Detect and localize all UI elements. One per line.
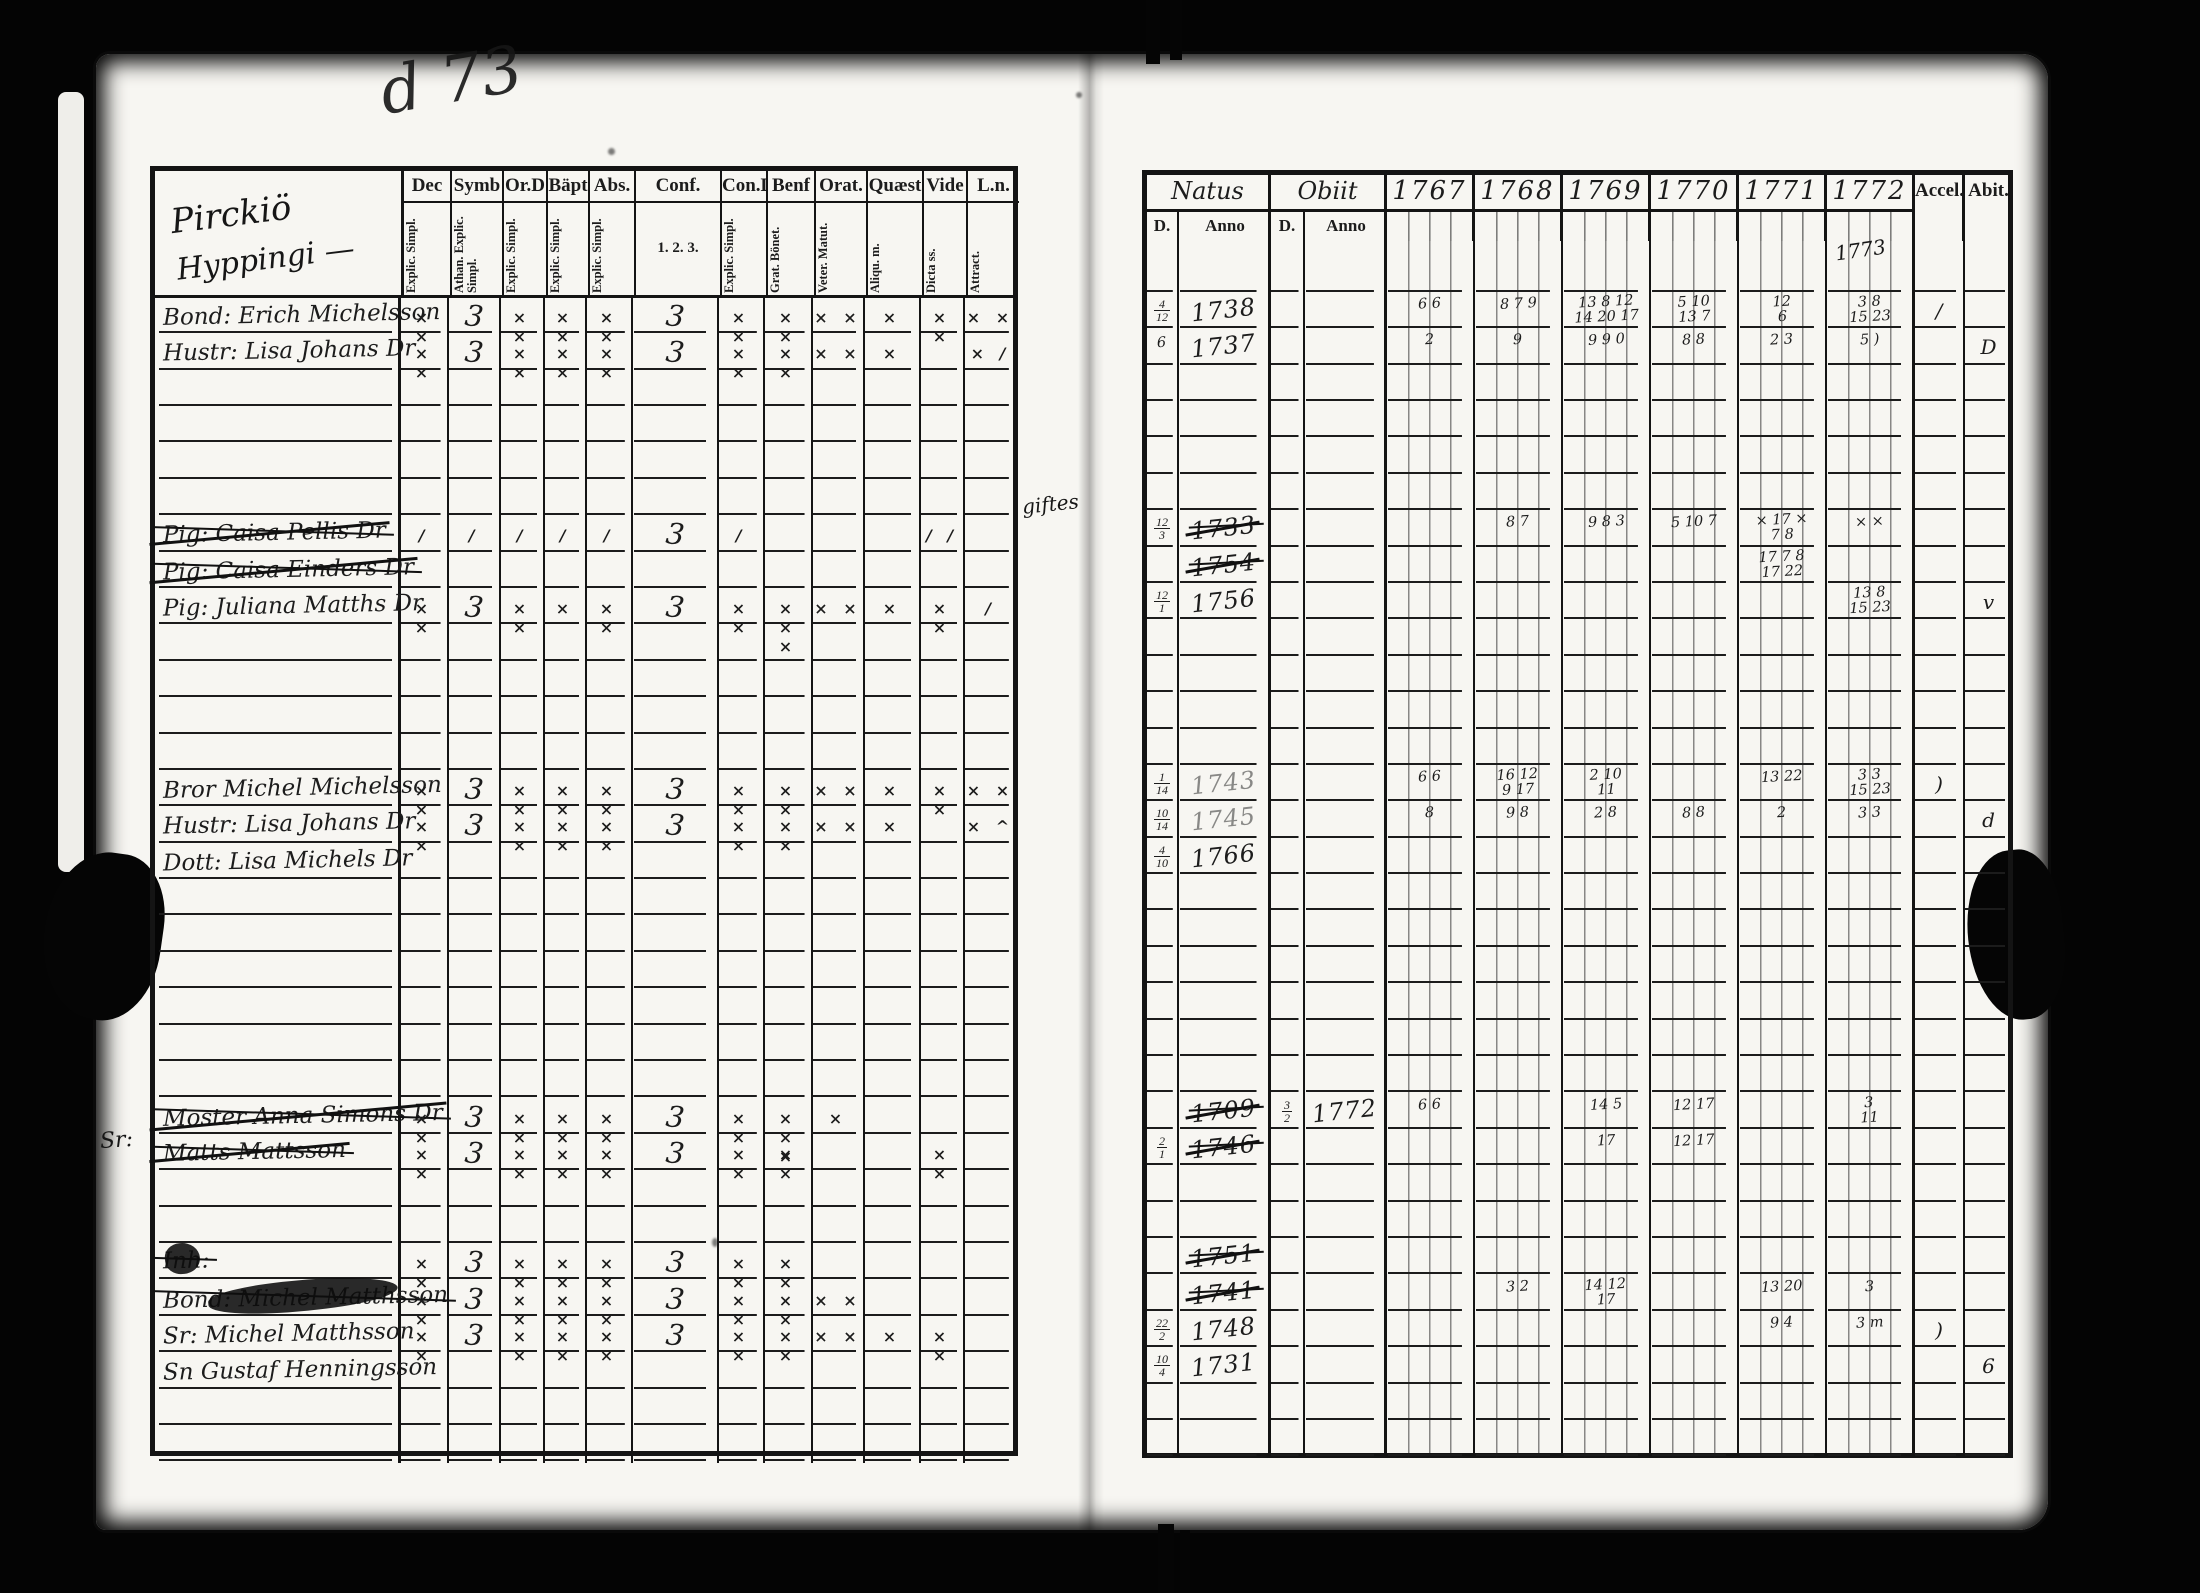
- right-table-row: 1751: [1147, 1239, 2008, 1275]
- obiit-cell: [1305, 1421, 1387, 1457]
- year-value: 6: [1157, 336, 1167, 352]
- natus-cell: [1179, 241, 1271, 293]
- natus-cell: 1737: [1179, 329, 1271, 365]
- communion-year-cell: [1651, 1312, 1739, 1348]
- communion-year-cell: [1827, 548, 1915, 584]
- examination-mark: /: [736, 526, 747, 545]
- mark-cell: × ×: [501, 1135, 545, 1171]
- communion-year-cell: [1827, 1348, 1915, 1384]
- person-name-cell: Pig: Caisa Einders Dr: [155, 553, 401, 589]
- examination-mark: 3: [463, 298, 485, 334]
- mark-cell: [401, 698, 449, 734]
- communion-year-cell: [1651, 1166, 1739, 1202]
- day-fraction: 412: [1154, 298, 1170, 323]
- mark-cell: [587, 1426, 633, 1462]
- accel-cell: [1915, 548, 1965, 584]
- communion-year-cell: [1563, 839, 1651, 875]
- communion-year-cell: [1475, 948, 1563, 984]
- mark-cell: [921, 1026, 965, 1062]
- accel-cell: [1915, 802, 1965, 838]
- day-fraction: 410: [1154, 844, 1170, 869]
- year-header-1767: 1767: [1387, 175, 1475, 241]
- communion-year-cell: 8: [1387, 802, 1475, 838]
- communion-year-cell: [1739, 948, 1827, 984]
- right-table-row: [1147, 984, 2008, 1020]
- communion-year-cell: [1387, 1166, 1475, 1202]
- examination-mark: 3: [664, 1244, 686, 1280]
- communion-date-marks: 8 7 9: [1499, 296, 1537, 313]
- natus-cell: 410: [1147, 839, 1179, 875]
- mark-cell: [501, 444, 545, 480]
- obiit-cell: [1305, 1057, 1387, 1093]
- mark-cell: [865, 1026, 921, 1062]
- person-name-cell: [155, 1426, 401, 1462]
- natus-cell: 1731: [1179, 1348, 1271, 1384]
- communion-year-cell: [1387, 730, 1475, 766]
- communion-year-cell: [1739, 839, 1827, 875]
- person-name-cell: [155, 917, 401, 953]
- mark-cell: ×: [865, 298, 921, 334]
- person-name-cell: [155, 698, 401, 734]
- mark-cell: [965, 1426, 1016, 1462]
- year-label: 1768: [1475, 175, 1560, 212]
- communion-year-cell: × 17 × 7 8: [1739, 511, 1827, 547]
- abit-cell: [1965, 402, 2012, 438]
- left-table-row: Dott: Lisa Michels Dr: [155, 844, 1013, 880]
- column-label: Or.D: [504, 171, 546, 203]
- left-table-row: Hustr: Lisa Johans Dr× ×3× ×× ×× ×3× ×× …: [155, 807, 1013, 843]
- examination-mark: 3: [664, 589, 686, 625]
- left-table-row: [155, 1062, 1013, 1098]
- communion-year-cell: 9 4: [1739, 1312, 1827, 1348]
- mark-cell: [921, 371, 965, 407]
- mark-cell: [965, 444, 1016, 480]
- examination-mark: 3: [463, 589, 485, 625]
- obiit-cell: [1305, 621, 1387, 657]
- communion-year-cell: 13 8 15 23: [1827, 584, 1915, 620]
- abit-cell: [1965, 912, 2012, 948]
- mark-cell: [401, 1026, 449, 1062]
- mark-cell: [921, 1281, 965, 1317]
- mark-cell: [965, 1171, 1016, 1207]
- abit-cell: [1965, 1166, 2012, 1202]
- obiit-cell: [1305, 548, 1387, 584]
- person-name-cell: [155, 407, 401, 443]
- natus-cell: [1147, 912, 1179, 948]
- examination-mark: 3: [664, 1281, 686, 1317]
- natus-cell: [1147, 621, 1179, 657]
- communion-year-cell: [1651, 693, 1739, 729]
- left-table-row: Pig: Juliana Matths Dr× ×3× ××× ×3× ×× ×…: [155, 589, 1013, 625]
- mark-cell: 3: [633, 1135, 719, 1171]
- mark-cell: [401, 553, 449, 589]
- mark-cell: × ×: [719, 1281, 765, 1317]
- communion-year-cell: [1651, 439, 1739, 475]
- natus-cell: 21: [1147, 1130, 1179, 1166]
- mark-cell: × ×: [587, 298, 633, 334]
- natus-cell: 1738: [1179, 293, 1271, 329]
- mark-cell: [813, 989, 865, 1025]
- mark-cell: [921, 880, 965, 916]
- obiit-cell: [1271, 402, 1305, 438]
- examination-mark: × ×: [814, 599, 861, 618]
- mark-cell: [865, 516, 921, 552]
- mark-cell: × ×: [401, 1244, 449, 1280]
- mark-cell: × ×: [719, 334, 765, 370]
- mark-cell: 3: [449, 589, 501, 625]
- natus-cell: [1147, 548, 1179, 584]
- left-table-row: Pig: Caisa Pellis Dr/////3// /: [155, 516, 1013, 552]
- mark-cell: [813, 1171, 865, 1207]
- communion-year-cell: [1563, 730, 1651, 766]
- mark-cell: [545, 880, 587, 916]
- mark-cell: [719, 480, 765, 516]
- communion-year-cell: [1563, 1057, 1651, 1093]
- mark-cell: [401, 880, 449, 916]
- natus-cell: [1147, 1166, 1179, 1202]
- communion-year-cell: [1387, 1130, 1475, 1166]
- communion-date-marks: 3: [1864, 1279, 1874, 1295]
- accel-cell: /: [1915, 293, 1965, 329]
- obiit-cell: [1305, 1385, 1387, 1421]
- column-sublabel: Explic. Simpl.: [548, 203, 588, 295]
- accel-cell: [1915, 1057, 1965, 1093]
- abit-mark: D: [1980, 335, 1996, 359]
- person-name-cell: Sr: Michel Matthsson: [155, 1317, 401, 1353]
- obiit-cell: [1305, 439, 1387, 475]
- communion-year-cell: 12 6: [1739, 293, 1827, 329]
- communion-year-cell: 3: [1827, 1276, 1915, 1312]
- communion-year-cell: 5 10 13 7: [1651, 293, 1739, 329]
- communion-date-marks: 12 17: [1673, 1133, 1715, 1150]
- year-value: 1738: [1190, 293, 1258, 328]
- day-fraction: 121: [1154, 589, 1170, 614]
- accel-cell: [1915, 1166, 1965, 1202]
- right-table-row: 4101766: [1147, 839, 2008, 875]
- year-value: 1737: [1190, 329, 1258, 364]
- right-table-row: [1147, 1166, 2008, 1202]
- mark-cell: 3: [449, 1244, 501, 1280]
- column-head-abs: Abs. Explic. Simpl.: [590, 171, 636, 295]
- mark-cell: × ×: [719, 771, 765, 807]
- mark-cell: [633, 989, 719, 1025]
- mark-cell: 3: [449, 1281, 501, 1317]
- obiit-cell: [1305, 802, 1387, 838]
- abit-cell: [1965, 657, 2012, 693]
- mark-cell: [921, 334, 965, 370]
- year-value: 1751: [1190, 1239, 1258, 1274]
- communion-year-cell: 6 6: [1387, 766, 1475, 802]
- communion-year-cell: [1739, 875, 1827, 911]
- day-fraction: 114: [1154, 771, 1170, 796]
- right-table-row: 175417 7 8 17 22: [1147, 548, 2008, 584]
- obiit-label: Obiit: [1271, 175, 1384, 212]
- obiit-cell: [1271, 241, 1305, 293]
- left-table-row: [155, 917, 1013, 953]
- natus-cell: [1179, 366, 1271, 402]
- mark-cell: [921, 1390, 965, 1426]
- mark-cell: × ×: [813, 807, 865, 843]
- mark-cell: [545, 407, 587, 443]
- mark-cell: × ×: [545, 298, 587, 334]
- margin-prefix-sr: Sr:: [99, 1127, 134, 1154]
- person-name-cell: Bond: Erich Michelsson: [155, 298, 401, 334]
- accel-cell: [1915, 1348, 1965, 1384]
- examination-mark: 3: [463, 1135, 485, 1171]
- communion-year-cell: [1475, 1312, 1563, 1348]
- natus-cell: [1179, 912, 1271, 948]
- communion-year-cell: [1739, 475, 1827, 511]
- communion-year-cell: 13 22: [1739, 766, 1827, 802]
- day-fraction: 123: [1154, 516, 1170, 541]
- mark-cell: [449, 444, 501, 480]
- mark-cell: [765, 626, 813, 662]
- mark-cell: [865, 917, 921, 953]
- communion-year-cell: [1739, 1021, 1827, 1057]
- mark-cell: [449, 1426, 501, 1462]
- ink-speck: [608, 148, 615, 155]
- accel-mark: /: [1936, 299, 1943, 323]
- mark-cell: × ×: [587, 1281, 633, 1317]
- mark-cell: [921, 553, 965, 589]
- mark-cell: [545, 626, 587, 662]
- mark-cell: [401, 844, 449, 880]
- mark-cell: [633, 844, 719, 880]
- mark-cell: × ×: [921, 298, 965, 334]
- communion-date-marks: 3 8 15 23: [1848, 294, 1891, 327]
- column-sublabel: Explic. Simpl.: [404, 203, 450, 295]
- mark-cell: [719, 735, 765, 771]
- communion-year-cell: 9 8: [1475, 802, 1563, 838]
- examination-mark: × ×: [814, 1291, 861, 1310]
- mark-cell: [765, 917, 813, 953]
- obiit-cell: [1271, 366, 1305, 402]
- left-table-row: [155, 953, 1013, 989]
- communion-year-cell: [1739, 730, 1827, 766]
- obiit-cell: [1305, 766, 1387, 802]
- abit-mark: 6: [1982, 1354, 1995, 1378]
- communion-year-cell: 9 9 0: [1563, 329, 1651, 365]
- mark-cell: [921, 698, 965, 734]
- communion-year-cell: [1739, 366, 1827, 402]
- communion-year-cell: [1739, 1239, 1827, 1275]
- communion-year-cell: [1651, 657, 1739, 693]
- communion-year-cell: [1651, 948, 1739, 984]
- communion-year-cell: [1475, 1130, 1563, 1166]
- communion-year-cell: [1739, 693, 1827, 729]
- communion-year-cell: [1563, 1239, 1651, 1275]
- person-name-cell: [155, 662, 401, 698]
- mark-cell: [865, 1135, 921, 1171]
- right-table-row: [1147, 475, 2008, 511]
- mark-cell: [633, 735, 719, 771]
- obiit-cell: [1271, 1166, 1305, 1202]
- examination-mark: × /: [971, 344, 1011, 363]
- mark-cell: [587, 662, 633, 698]
- communion-year-cell: [1827, 1239, 1915, 1275]
- mark-cell: [587, 880, 633, 916]
- column-head-dec: Dec Explic. Simpl.: [404, 171, 452, 295]
- mark-cell: × × ×: [765, 1099, 813, 1135]
- communion-year-cell: [1739, 1130, 1827, 1166]
- communion-year-cell: [1475, 1385, 1563, 1421]
- communion-year-cell: [1739, 984, 1827, 1020]
- person-name-cell: Bror Michel Michelsson: [155, 771, 401, 807]
- examination-mark: 3: [664, 516, 686, 552]
- obiit-cell: [1271, 475, 1305, 511]
- mark-cell: 3: [633, 807, 719, 843]
- abit-cell: [1965, 1094, 2012, 1130]
- communion-date-marks: 17: [1596, 1134, 1615, 1150]
- mark-cell: [965, 516, 1016, 552]
- mark-cell: [965, 407, 1016, 443]
- accel-cell: [1915, 1421, 1965, 1457]
- column-head-ln: L.n. Attract.: [968, 171, 1019, 295]
- left-table-row: [155, 1426, 1013, 1462]
- column-label: Symb: [452, 171, 502, 203]
- communion-date-marks: 2 10 11: [1589, 767, 1623, 799]
- communion-year-cell: 8 8: [1651, 802, 1739, 838]
- mark-cell: [965, 953, 1016, 989]
- mark-cell: [633, 953, 719, 989]
- column-sublabel: Veter. Matut.: [816, 203, 866, 295]
- mark-cell: [449, 662, 501, 698]
- mark-cell: × ×: [501, 1099, 545, 1135]
- accel-mark: ): [1935, 1318, 1943, 1342]
- mark-cell: [719, 1353, 765, 1389]
- column-label: Dec: [404, 171, 450, 203]
- communion-year-cell: [1387, 439, 1475, 475]
- communion-year-cell: 12 17: [1651, 1094, 1739, 1130]
- communion-year-cell: 2 3: [1739, 329, 1827, 365]
- communion-year-cell: [1475, 1203, 1563, 1239]
- communion-year-cell: [1475, 730, 1563, 766]
- mark-cell: [501, 662, 545, 698]
- gutter-mark-bottom: [1158, 1524, 1174, 1593]
- abit-cell: [1965, 1312, 2012, 1348]
- accel-cell: [1915, 402, 1965, 438]
- column-label: Conf.: [636, 171, 720, 203]
- communion-year-cell: [1563, 366, 1651, 402]
- mark-cell: × ×: [401, 298, 449, 334]
- mark-cell: [449, 1208, 501, 1244]
- person-name: Pig: Juliana Matths Dr: [155, 590, 424, 622]
- abit-cell: [1965, 948, 2012, 984]
- examination-mark: × ×: [814, 308, 861, 327]
- accel-cell: ): [1915, 766, 1965, 802]
- mark-cell: [765, 1426, 813, 1462]
- mark-cell: [401, 626, 449, 662]
- person-name-cell: [155, 1026, 401, 1062]
- mark-cell: [401, 407, 449, 443]
- mark-cell: [501, 1208, 545, 1244]
- person-name: Matts Mattsson: [155, 1137, 346, 1167]
- examination-mark: /: [419, 526, 430, 545]
- natus-cell: 1751: [1179, 1239, 1271, 1275]
- column-head-bapt: Bäpt Explic. Simpl.: [548, 171, 590, 295]
- communion-year-cell: [1739, 1166, 1827, 1202]
- natus-cell: [1179, 402, 1271, 438]
- right-table-row: [1147, 402, 2008, 438]
- mark-cell: [813, 1426, 865, 1462]
- mark-cell: [921, 444, 965, 480]
- obiit-cell: [1271, 875, 1305, 911]
- mark-cell: [545, 480, 587, 516]
- communion-year-cell: [1827, 693, 1915, 729]
- examination-mark: ×: [883, 599, 901, 618]
- mark-cell: [633, 1426, 719, 1462]
- communion-year-cell: [1827, 475, 1915, 511]
- mark-cell: [921, 1244, 965, 1280]
- mark-cell: [965, 735, 1016, 771]
- mark-cell: [545, 1208, 587, 1244]
- mark-cell: × ×: [765, 298, 813, 334]
- mark-cell: [633, 917, 719, 953]
- obiit-cell: [1271, 693, 1305, 729]
- abit-cell: [1965, 1130, 2012, 1166]
- mark-cell: ×: [545, 589, 587, 625]
- mark-cell: [501, 407, 545, 443]
- communion-year-cell: [1475, 1348, 1563, 1384]
- mark-cell: [449, 735, 501, 771]
- obiit-header: Obiit D. Anno: [1271, 175, 1387, 241]
- mark-cell: [587, 989, 633, 1025]
- mark-cell: [865, 1099, 921, 1135]
- communion-year-cell: 8 7: [1475, 511, 1563, 547]
- accel-label: Accel.: [1915, 175, 1962, 209]
- person-name-cell: [155, 953, 401, 989]
- person-name: Sn Gustaf Henningsson: [155, 1354, 438, 1386]
- year-value: 1748: [1190, 1312, 1258, 1347]
- communion-date-marks: 13 8 15 23: [1848, 585, 1891, 618]
- column-head-orat: Orat. Veter. Matut.: [816, 171, 868, 295]
- examination-mark: 3: [664, 1135, 686, 1171]
- mark-cell: ×: [865, 1317, 921, 1353]
- year-value: 1746: [1190, 1130, 1258, 1165]
- mark-cell: [965, 1390, 1016, 1426]
- communion-date-marks: 9 8: [1506, 806, 1530, 822]
- mark-cell: × ×: [545, 771, 587, 807]
- mark-cell: × ×: [921, 771, 965, 807]
- mark-cell: [865, 1390, 921, 1426]
- communion-date-marks: 6 6: [1418, 769, 1442, 785]
- column-sublabel: Explic. Simpl.: [590, 203, 634, 295]
- obiit-cell: [1305, 1021, 1387, 1057]
- mark-cell: [633, 1353, 719, 1389]
- year-value: 1741: [1190, 1275, 1258, 1310]
- mark-cell: ×: [865, 771, 921, 807]
- abit-cell: [1965, 1421, 2012, 1457]
- abit-cell: [1965, 984, 2012, 1020]
- right-table-row: [1147, 1385, 2008, 1421]
- mark-cell: × ×: [545, 807, 587, 843]
- communion-year-cell: [1387, 1203, 1475, 1239]
- mark-cell: 3: [449, 298, 501, 334]
- mark-cell: 3: [633, 516, 719, 552]
- mark-cell: 3: [633, 589, 719, 625]
- abit-cell: [1965, 1203, 2012, 1239]
- mark-cell: × ×: [587, 1135, 633, 1171]
- natus-cell: 121: [1147, 584, 1179, 620]
- communion-year-cell: [1827, 875, 1915, 911]
- mark-cell: [401, 989, 449, 1025]
- mark-cell: × ×: [401, 334, 449, 370]
- communion-date-marks: 9 8 3: [1587, 514, 1625, 531]
- mark-cell: [401, 480, 449, 516]
- communion-year-cell: [1651, 1021, 1739, 1057]
- year-label: 1767: [1387, 175, 1472, 212]
- natus-cell: [1147, 657, 1179, 693]
